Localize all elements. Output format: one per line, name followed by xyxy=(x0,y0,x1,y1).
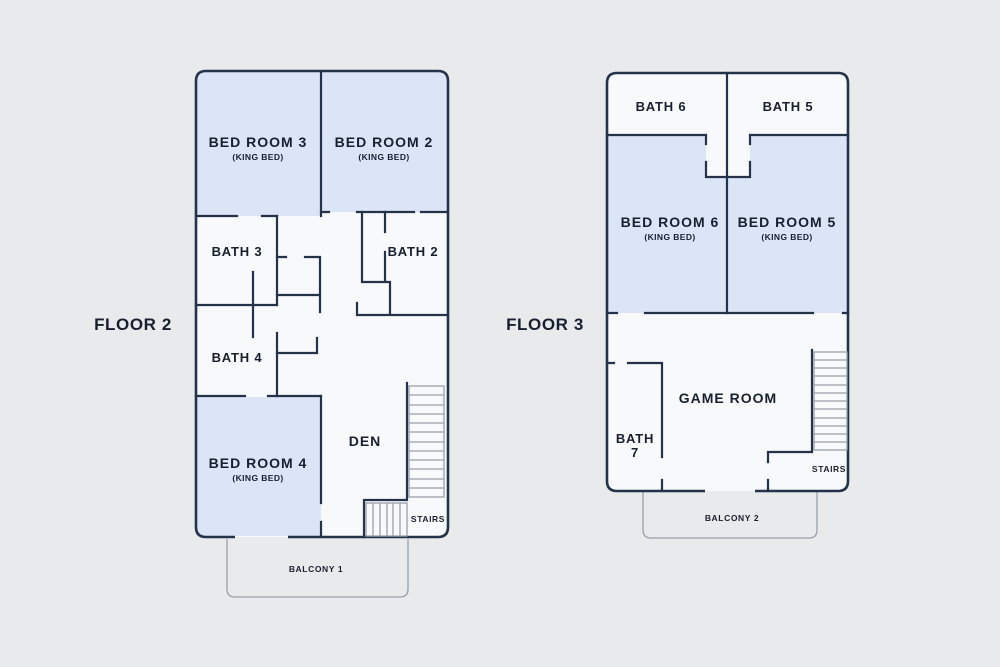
floor2-den-label: DEN xyxy=(349,433,382,449)
floor2-bedroom4-sublabel: (KING BED) xyxy=(232,473,283,483)
floor2-plan: BED ROOM 3 (KING BED) BED ROOM 2 (KING B… xyxy=(196,71,448,597)
floor3-bedroom5-sublabel: (KING BED) xyxy=(761,232,812,242)
floor2-balcony-label: BALCONY 1 xyxy=(289,564,343,574)
floor3-bedroom6-label: BED ROOM 6 xyxy=(621,214,720,230)
floor3-bath7-label-line2: 7 xyxy=(631,445,639,460)
floor2-bath4-label: BATH 4 xyxy=(212,350,263,365)
floor3-bedroom6-sublabel: (KING BED) xyxy=(644,232,695,242)
floor2-bedroom3-label: BED ROOM 3 xyxy=(209,134,308,150)
floorplan-canvas: BED ROOM 3 (KING BED) BED ROOM 2 (KING B… xyxy=(0,0,1000,667)
floor2-bedroom4-label: BED ROOM 4 xyxy=(209,455,308,471)
floor2-bath2-label: BATH 2 xyxy=(388,244,439,259)
floor3-balcony-label: BALCONY 2 xyxy=(705,513,759,523)
floor2-title: FLOOR 2 xyxy=(94,315,172,334)
floor3-stairs-label: STAIRS xyxy=(812,464,846,474)
floor2-stairs-label: STAIRS xyxy=(411,514,445,524)
floor3-bath7-label-line1: BATH xyxy=(616,431,654,446)
floor2-bedroom3-sublabel: (KING BED) xyxy=(232,152,283,162)
floor3-title: FLOOR 3 xyxy=(506,315,584,334)
floor3-bath5-label: BATH 5 xyxy=(763,99,814,114)
floor2-bedroom2-label: BED ROOM 2 xyxy=(335,134,434,150)
floor2-bedroom2-sublabel: (KING BED) xyxy=(358,152,409,162)
floor3-gameroom-label: GAME ROOM xyxy=(679,390,777,406)
floor3-plan: BATH 6 BATH 5 BED ROOM 6 (KING BED) BED … xyxy=(607,73,848,538)
floor3-bath6-label: BATH 6 xyxy=(636,99,687,114)
floorplan-page: BED ROOM 3 (KING BED) BED ROOM 2 (KING B… xyxy=(0,0,1000,667)
floor3-bedroom5-label: BED ROOM 5 xyxy=(738,214,837,230)
floor2-bath3-label: BATH 3 xyxy=(212,244,263,259)
